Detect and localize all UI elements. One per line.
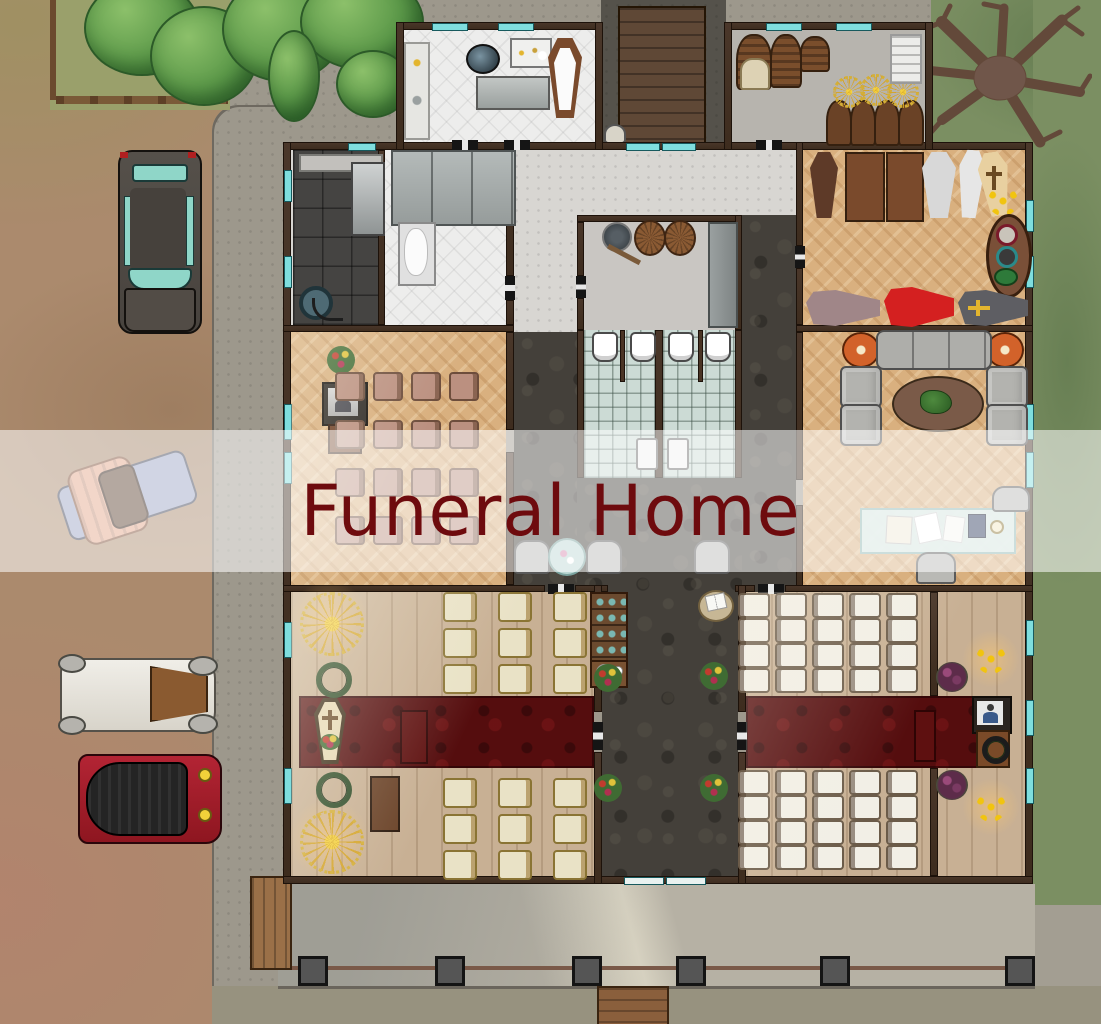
embalming-table (476, 76, 550, 110)
stacked-chairs (800, 36, 830, 72)
chapel-chair (886, 618, 918, 643)
chapel-chair (775, 795, 807, 820)
supply-cabinet (708, 222, 738, 328)
flower-arrangement (700, 662, 728, 690)
portrait-figure-torso (335, 400, 351, 412)
urn (994, 268, 1018, 286)
window (1026, 200, 1034, 232)
back-door-glass (626, 143, 660, 151)
chapel-chair (849, 668, 881, 693)
stall-divider (698, 330, 703, 382)
chapel-chair (812, 593, 844, 618)
funeral-wreath (316, 772, 352, 808)
potted-plant (920, 390, 952, 414)
chapel-chair (849, 618, 881, 643)
chapel-chair (775, 668, 807, 693)
white-car-fender (188, 714, 218, 734)
chapel-chair (498, 778, 532, 808)
kneeler (400, 710, 428, 764)
side-lamp-table (842, 332, 880, 368)
wall (577, 298, 584, 330)
chapel-chair (498, 850, 532, 880)
chapel-chair (443, 664, 477, 694)
chapel-chair (738, 593, 770, 618)
door (504, 140, 530, 150)
chapel-chair (775, 820, 807, 845)
window (1026, 620, 1034, 656)
chapel-chair (849, 593, 881, 618)
wall (577, 222, 584, 276)
chapel-chair (738, 795, 770, 820)
supply-counter (404, 42, 430, 140)
chapel-chair (775, 770, 807, 795)
flower-arrangement (936, 770, 968, 800)
front-steps (597, 986, 669, 1024)
bush (268, 30, 320, 122)
casket-table (845, 152, 885, 222)
red-car-headlight (198, 768, 212, 782)
hearse-rear-window (132, 164, 188, 182)
window (836, 23, 872, 31)
toilet (705, 332, 731, 362)
chapel-chair (553, 592, 587, 622)
chapel-chair (886, 593, 918, 618)
window (766, 23, 802, 31)
wall (577, 215, 742, 222)
chapel-chair (553, 850, 587, 880)
hearse-side-window (186, 196, 194, 266)
chapel-chair (553, 664, 587, 694)
rear-deck (618, 6, 706, 148)
map-title: Funeral Home (300, 470, 800, 552)
dead-tree-icon (912, 0, 1092, 150)
folding-chair (740, 58, 770, 90)
chapel-chair (812, 643, 844, 668)
lectern (914, 710, 936, 762)
stall-divider (620, 330, 625, 382)
flower-arrangement (936, 662, 968, 692)
back-door-glass (662, 143, 696, 151)
chapel-chair (886, 845, 918, 870)
chapel-chair (443, 778, 477, 808)
window (284, 768, 292, 804)
chapel-chair (775, 643, 807, 668)
chapel-chair (738, 668, 770, 693)
wall (724, 22, 933, 30)
wall (785, 585, 1033, 592)
window (1026, 768, 1034, 804)
door (795, 246, 805, 268)
chapel-chair (443, 592, 477, 622)
chapel-chair (886, 770, 918, 795)
wall (796, 268, 803, 325)
sunburst-chandelier (300, 592, 364, 656)
window (284, 256, 292, 288)
chapel-chair (738, 845, 770, 870)
wall (283, 585, 545, 592)
porch-railing (288, 966, 1028, 970)
wall (595, 22, 603, 150)
armchair (986, 366, 1028, 408)
red-car-headlight (198, 808, 212, 822)
chapel-chair (812, 795, 844, 820)
garden-fence-left (50, 0, 56, 100)
casket-cross (976, 300, 980, 316)
door (593, 722, 603, 750)
chapel-chair (443, 814, 477, 844)
visitation-chair (373, 372, 403, 401)
porch-pillar (435, 956, 465, 986)
porch-pillar (572, 956, 602, 986)
flower-arrangement (594, 664, 622, 692)
tool-table (510, 38, 552, 68)
portrait-figure-head (987, 704, 994, 711)
wall (283, 325, 514, 332)
casket-flowers (320, 734, 340, 750)
flower-arrangement (700, 774, 728, 802)
chapel-chair (775, 593, 807, 618)
chapel-chair (886, 820, 918, 845)
window (432, 23, 468, 31)
chapel-chair (738, 770, 770, 795)
chapel-chair (553, 628, 587, 658)
wall (506, 300, 514, 325)
sofa (876, 330, 992, 370)
white-car-fender (58, 654, 86, 673)
red-car-roof (86, 762, 188, 836)
chapel-chair (553, 814, 587, 844)
porch-pillar (820, 956, 850, 986)
portrait-figure-torso (983, 712, 998, 723)
chapel-chair (849, 845, 881, 870)
front-porch (278, 884, 1035, 989)
wall (506, 332, 514, 430)
hearse-windshield (128, 268, 192, 290)
hearse-roof (130, 188, 186, 270)
title-banner: Funeral Home (0, 430, 1101, 572)
window (284, 170, 292, 202)
chapel-chair (886, 643, 918, 668)
toilet (630, 332, 656, 362)
wall (594, 752, 602, 884)
side-table (370, 776, 400, 832)
sunburst-chandelier (300, 810, 364, 874)
entrance-door (624, 877, 664, 885)
casket-cross (992, 166, 996, 190)
hearse-taillight (188, 152, 196, 158)
window (498, 23, 534, 31)
funeral-home-map: Funeral Home (0, 0, 1101, 1024)
locker (351, 162, 385, 236)
chapel-chair (812, 668, 844, 693)
chapel-chair (812, 845, 844, 870)
stacked-chairs (874, 100, 900, 146)
candelabra (976, 644, 1006, 674)
door (576, 276, 586, 298)
white-car-fender (188, 656, 218, 676)
hearse-hood (124, 288, 196, 332)
door (452, 140, 478, 150)
window (284, 622, 292, 658)
red-aisle-carpet-east (746, 696, 1010, 768)
door (737, 722, 747, 750)
casket-cross (328, 710, 332, 730)
casket-cross (322, 716, 338, 720)
toilet (592, 332, 618, 362)
hearse-taillight (120, 152, 128, 158)
porch-pillar (298, 956, 328, 986)
casket-cross (986, 172, 1002, 176)
wall (724, 22, 732, 150)
chapel-chair (775, 845, 807, 870)
basket (634, 220, 666, 256)
chapel-chair (775, 618, 807, 643)
chapel-chair (886, 795, 918, 820)
armchair (840, 366, 882, 408)
window (1026, 700, 1034, 736)
linen-stack (890, 34, 922, 84)
chapel-chair (849, 820, 881, 845)
chapel-chair (553, 778, 587, 808)
window (348, 143, 376, 151)
basket (664, 220, 696, 256)
chapel-chair (849, 643, 881, 668)
refreshment-hutch (590, 592, 628, 662)
memorial-plant (327, 346, 355, 374)
chapel-chair (738, 643, 770, 668)
flower-arrangement (594, 774, 622, 802)
chapel-chair (443, 628, 477, 658)
garden-stone (604, 124, 626, 144)
chapel-chair (443, 850, 477, 880)
urn (996, 224, 1018, 246)
toilet (668, 332, 694, 362)
candelabra (976, 792, 1006, 822)
entrance-door (666, 877, 706, 885)
chapel-chair (738, 618, 770, 643)
chapel-chair (498, 592, 532, 622)
chapel-chair (812, 770, 844, 795)
door (505, 276, 515, 300)
side-walkway (250, 876, 292, 970)
chapel-chair (498, 628, 532, 658)
wall (575, 585, 608, 592)
wash-basin (466, 44, 500, 74)
wall (396, 22, 404, 150)
visitation-chair (335, 372, 365, 401)
chapel-chair (886, 668, 918, 693)
chapel-chair (849, 770, 881, 795)
candelabra (988, 186, 1018, 216)
chapel-chair (812, 820, 844, 845)
visitation-chair (449, 372, 479, 401)
wall (925, 22, 933, 150)
chapel-chair (849, 795, 881, 820)
stacked-chairs (770, 34, 802, 88)
chapel-chair (498, 664, 532, 694)
funeral-wreath (982, 736, 1010, 764)
shrouded-body (404, 228, 428, 276)
casket-table (886, 152, 924, 222)
door (756, 140, 782, 150)
chapel-chair (498, 814, 532, 844)
red-aisle-carpet-west (299, 696, 594, 768)
funeral-wreath (316, 662, 352, 698)
porch-pillar (676, 956, 706, 986)
chapel-chair (812, 618, 844, 643)
visitation-chair (411, 372, 441, 401)
porch-pillar (1005, 956, 1035, 986)
wall (796, 142, 803, 246)
white-car-fender (58, 716, 86, 735)
urn (996, 246, 1018, 268)
cold-storage-cabinet (391, 150, 516, 226)
chapel-chair (738, 820, 770, 845)
